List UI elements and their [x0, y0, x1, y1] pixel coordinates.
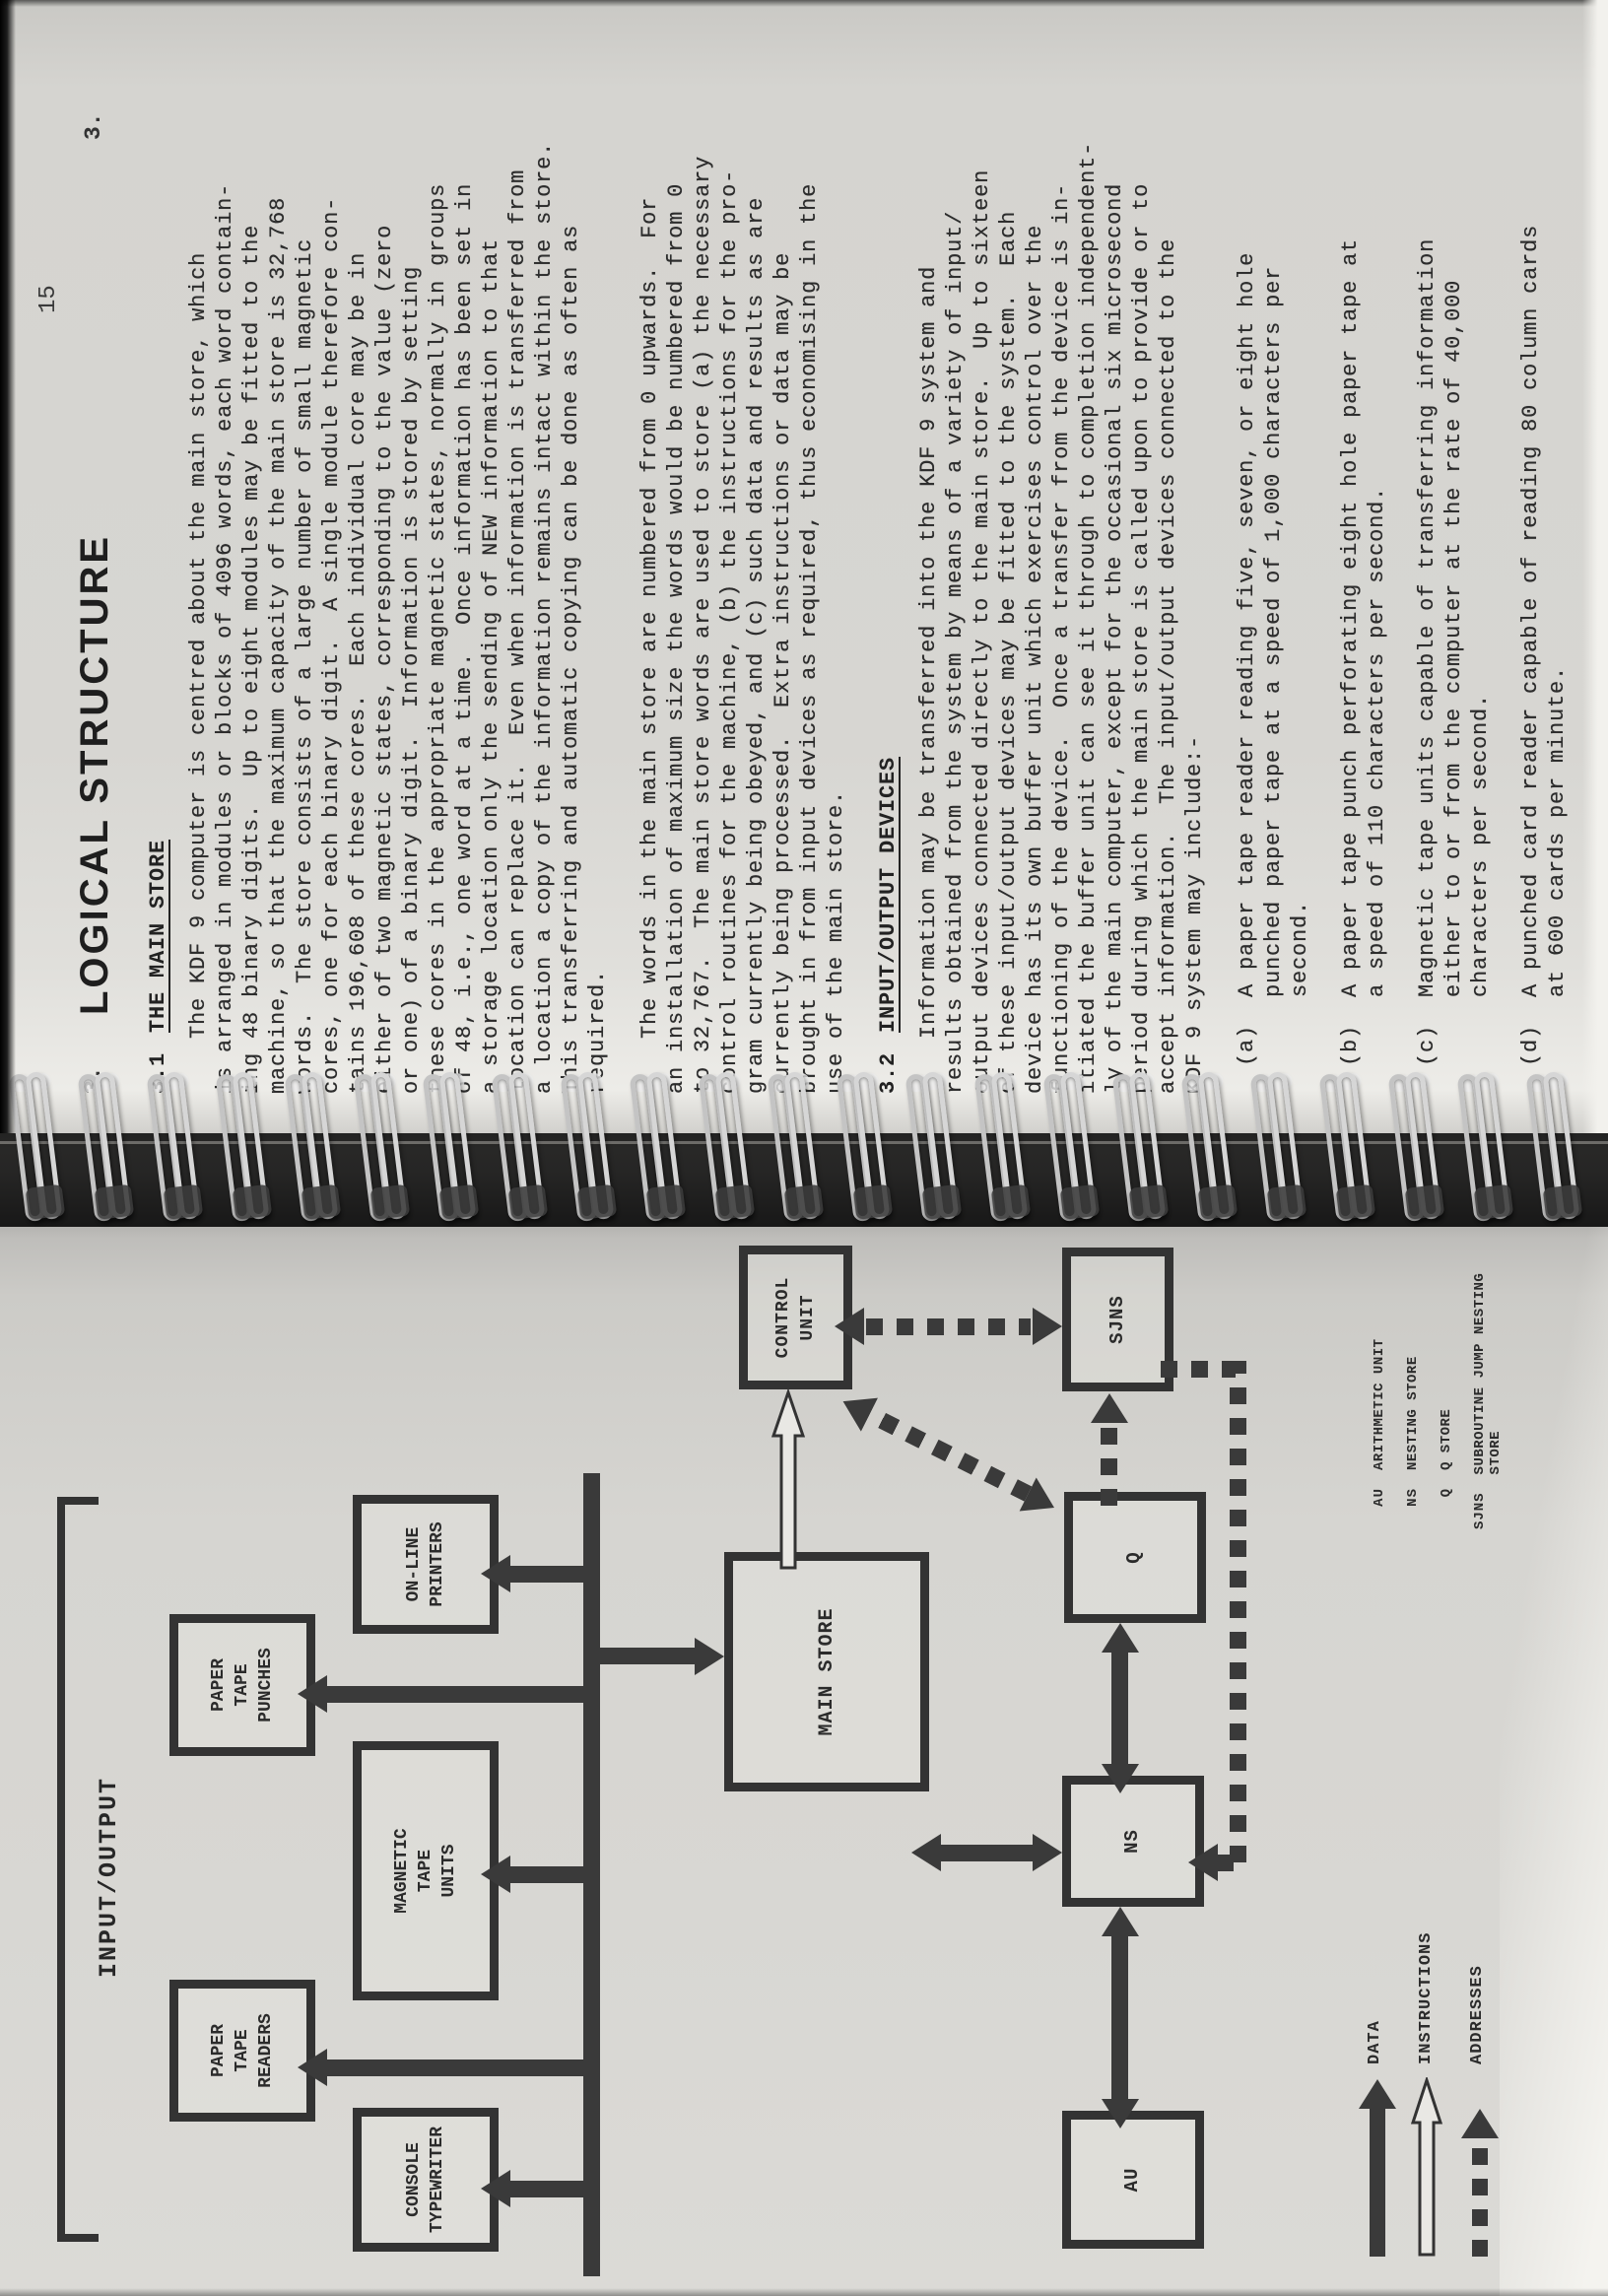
legend-data-arrowhead — [1359, 2079, 1396, 2109]
page-title: LOGICAL STRUCTURE — [73, 534, 117, 1015]
scanned-manual-photo: 15 3. LOGICAL STRUCTURE 3. 3.1THE MAIN S… — [0, 0, 1608, 2296]
box-q: Q — [1064, 1492, 1206, 1623]
binding-coil — [216, 1070, 280, 1230]
paragraph: The words in the main store are numbered… — [637, 79, 850, 1094]
legend-row: NS NESTING STORE — [1405, 1235, 1439, 1565]
text-line: at 600 cards per minute. — [1545, 79, 1572, 1066]
binding-coil — [1043, 1070, 1107, 1230]
text-line: or one) of a binary digit. Information i… — [399, 79, 426, 1094]
text-line: functioning of the device. Once a transf… — [1049, 79, 1076, 1094]
text-line: output devices connected directly to the… — [970, 79, 996, 1094]
legend-addresses-label: ADDRESSES — [1468, 1965, 1487, 2064]
box-paper-tape-punches: PAPER TAPE PUNCHES — [169, 1614, 315, 1756]
text-line: machine, so that the maximum capacity of… — [266, 79, 293, 1094]
box-paper-tape-readers: PAPER TAPE READERS — [169, 1980, 315, 2122]
scan-edge-bottom — [0, 2288, 1608, 2296]
legend-abbr: Q — [1439, 1488, 1454, 1565]
text-line: period during which the main store is ca… — [1129, 79, 1156, 1094]
list-item-c: (c) Magnetic tape units capable of trans… — [1415, 79, 1495, 1094]
spiral-binding — [0, 1066, 1608, 1244]
text-line: cores, one for each binary digit. A sing… — [319, 79, 346, 1094]
text-page-rotated-content: 15 3. LOGICAL STRUCTURE 3. 3.1THE MAIN S… — [0, 0, 1608, 1133]
text-line: KDF 9 system may include:- — [1182, 79, 1209, 1094]
instructions-arrow-main-store-to-control-unit — [771, 1389, 805, 1570]
box-console-typewriter: CONSOLE TYPEWRITER — [353, 2108, 499, 2252]
input-output-label: INPUT/OUTPUT — [95, 1710, 123, 2045]
text-line: This transferring and automatic copying … — [559, 79, 585, 1094]
text-line: Information may be transferred into the … — [916, 79, 943, 1094]
arrowhead-into-ns-top — [1033, 1834, 1062, 1871]
arrowhead-into-control-unit-bottom — [835, 1308, 864, 1345]
arrowhead-into-q-left — [1102, 1623, 1139, 1653]
dashed-sjns-down — [1161, 1361, 1236, 1378]
text-line: ing 48 binary digits. Up to eight module… — [239, 79, 266, 1094]
text-line: characters per second. — [1468, 79, 1495, 1066]
text-line: a storage location only the sending of N… — [479, 79, 505, 1094]
binding-coil — [1526, 1070, 1590, 1230]
text-line: currently being processed. Extra instruc… — [770, 79, 797, 1094]
binding-coil — [423, 1070, 487, 1230]
text-line: either to or from the computer at the ra… — [1441, 79, 1468, 1066]
text-line: an installation of maximum size the word… — [664, 79, 691, 1094]
input-output-bracket — [57, 1497, 99, 2242]
list-item-d: (d) A punched card reader capable of rea… — [1518, 79, 1572, 1094]
section-heading-3-2: 3.2INPUT/OUTPUT DEVICES — [876, 79, 903, 1094]
legend-data-arrow — [1370, 2109, 1385, 2257]
binding-coil — [1457, 1070, 1521, 1230]
page-stack-edge-right — [1582, 0, 1608, 1133]
text-line: is arranged in modules or blocks of 4096… — [213, 79, 239, 1094]
connector-console-typewriter — [506, 2181, 591, 2197]
arrowhead-into-ns-left — [1102, 1907, 1139, 1936]
legend-abbr: SJNS — [1472, 1492, 1488, 1565]
connector-online-printers — [506, 1566, 591, 1583]
arrowhead-into-au — [1102, 2099, 1139, 2128]
arrowhead-into-ns-bottom — [1188, 1844, 1218, 1881]
text-line: a location a copy of the information rem… — [532, 79, 559, 1094]
box-main-store: MAIN STORE — [724, 1552, 929, 1791]
arrowhead-into-sjns-top — [1033, 1308, 1062, 1345]
legend-meaning: Q STORE — [1439, 1409, 1454, 1470]
legend-meaning: ARITHMETIC UNIT — [1372, 1338, 1387, 1470]
text-line: (c) Magnetic tape units capable of trans… — [1415, 79, 1441, 1066]
connector-bus-to-main-store — [591, 1648, 697, 1664]
text-line: accept information. The input/output dev… — [1156, 79, 1182, 1094]
text-line: required. — [585, 79, 612, 1094]
box-au: AU — [1062, 2111, 1204, 2249]
text-line: itiated the buffer unit can see it throu… — [1076, 79, 1103, 1094]
legend-instructions-arrow — [1411, 2077, 1442, 2257]
binding-coil — [285, 1070, 349, 1230]
legend-meaning: SUBROUTINE JUMP NESTING STORE — [1472, 1235, 1504, 1474]
box-online-printers: ON-LINE PRINTERS — [353, 1495, 499, 1634]
text-line: brought in from input devices as require… — [797, 79, 824, 1094]
text-line: these cores in the appropriate magnetic … — [426, 79, 452, 1094]
scan-edge-top — [0, 0, 1608, 7]
figure-page-rotated-content: INPUT/OUTPUT PAPER TAPE READERS PAPER TA… — [0, 1227, 1608, 2296]
binding-coil — [974, 1070, 1038, 1230]
box-magnetic-tape-units: MAGNETIC TAPE UNITS — [353, 1741, 499, 2000]
connector-ns-q — [1111, 1651, 1128, 1766]
paragraph: The KDF 9 computer is centred about the … — [186, 79, 612, 1094]
binding-coil — [768, 1070, 832, 1230]
body-text-column: 3.1THE MAIN STORE The KDF 9 computer is … — [146, 79, 1595, 1094]
binding-coil — [1319, 1070, 1383, 1230]
legend-addresses-arrowhead — [1461, 2109, 1499, 2138]
legend-abbr: NS — [1405, 1488, 1421, 1565]
legend-addresses-arrow — [1472, 2140, 1488, 2257]
legend-row: AU ARITHMETIC UNIT — [1372, 1235, 1405, 1565]
text-line: to 32,767. The main store words are used… — [691, 79, 717, 1094]
text-line: (d) A punched card reader capable of rea… — [1518, 79, 1545, 1066]
binding-coil — [561, 1070, 625, 1230]
binding-coil — [147, 1070, 211, 1230]
text-line: of 48, i.e., one word at a time. Once in… — [452, 79, 479, 1094]
text-line: results obtained from the system by mean… — [943, 79, 970, 1094]
legend-instructions-label: INSTRUCTIONS — [1417, 1932, 1436, 2064]
legend-data-label: DATA — [1366, 2020, 1384, 2064]
arrowhead-into-sjns-left — [1091, 1393, 1128, 1423]
dashed-turn-stub — [1216, 1855, 1234, 1871]
text-line: gram currently being obeyed, and (c) suc… — [744, 79, 770, 1094]
title-line: 3. LOGICAL STRUCTURE 3. — [73, 0, 116, 1133]
figure-caption: FIGURE 2 — [1545, 2081, 1575, 2261]
binding-coil — [837, 1070, 901, 1230]
dashed-control-unit-q — [836, 1386, 1062, 1522]
text-line: ly of the main computer, except for the … — [1103, 79, 1129, 1094]
arrowhead-into-main-store-bottom — [911, 1834, 941, 1871]
text-line: The words in the main store are numbered… — [637, 79, 664, 1094]
binding-coil — [630, 1070, 694, 1230]
connector-paper-tape-punches — [323, 1686, 591, 1703]
binding-coil — [1112, 1070, 1176, 1230]
arrowhead-into-ns-right — [1102, 1764, 1139, 1793]
binding-coil — [492, 1070, 556, 1230]
dashed-sjns-to-ns — [1230, 1361, 1246, 1862]
box-sjns: SJNS — [1062, 1248, 1173, 1391]
connector-main-store-ns — [939, 1845, 1035, 1861]
text-line: punched paper tape at a speed of 1,000 c… — [1261, 79, 1288, 1066]
text-line: location can replace it. Even when infor… — [505, 79, 532, 1094]
legend-abbr: AU — [1372, 1488, 1387, 1565]
legend-row: Q Q STORE — [1439, 1235, 1472, 1565]
connector-magnetic-tape-units — [506, 1866, 591, 1883]
connector-au-ns — [1111, 1933, 1128, 2101]
binding-coil — [1250, 1070, 1314, 1230]
text-line: second. — [1288, 79, 1314, 1066]
text-line: either of two magnetic states, correspon… — [372, 79, 399, 1094]
text-line: The KDF 9 computer is centred about the … — [186, 79, 213, 1094]
abbreviation-legend: AU ARITHMETIC UNIT NS NESTING STORE Q Q … — [1372, 1235, 1506, 1565]
text-line: use of the main store. — [824, 79, 850, 1094]
binding-coil — [1388, 1070, 1452, 1230]
binding-coil — [78, 1070, 142, 1230]
section-heading-3-1: 3.1THE MAIN STORE — [146, 79, 172, 1094]
box-ns: NS — [1062, 1776, 1204, 1907]
paragraph: Information may be transferred into the … — [916, 79, 1209, 1094]
text-line: (b) A paper tape punch perforating eight… — [1338, 79, 1365, 1066]
binding-coil — [699, 1070, 763, 1230]
arrowhead-into-main-store-top — [695, 1638, 724, 1675]
legend-row: SJNS SUBROUTINE JUMP NESTING STORE — [1472, 1235, 1506, 1565]
text-line: words. The store consists of a large num… — [293, 79, 319, 1094]
text-page: 15 3. LOGICAL STRUCTURE 3. 3.1THE MAIN S… — [0, 0, 1608, 1133]
dashed-q-sjns — [1101, 1425, 1117, 1506]
text-line: device has its own buffer unit which exe… — [1023, 79, 1049, 1094]
binding-coil — [1181, 1070, 1245, 1230]
text-line: control routines for the machine, (b) th… — [717, 79, 744, 1094]
text-line: a speed of 110 characters per second. — [1365, 79, 1391, 1066]
binding-coil — [354, 1070, 418, 1230]
text-line: (a) A paper tape reader reading five, se… — [1235, 79, 1261, 1066]
connector-paper-tape-readers — [323, 2060, 591, 2076]
dashed-control-unit-sjns — [866, 1318, 1031, 1335]
text-line: tains 196,608 of these cores. Each indiv… — [346, 79, 372, 1094]
page-number: 15 — [35, 285, 62, 313]
chapter-marker-right: 3. — [81, 112, 106, 140]
list-item-a: (a) A paper tape reader reading five, se… — [1235, 79, 1314, 1094]
text-line: of these input/output devices may be fit… — [996, 79, 1023, 1094]
scan-edge-left — [0, 0, 16, 1133]
list-item-b: (b) A paper tape punch perforating eight… — [1338, 79, 1391, 1094]
binding-coil — [9, 1070, 73, 1230]
legend-meaning: NESTING STORE — [1405, 1356, 1421, 1470]
binding-coil — [905, 1070, 970, 1230]
figure-page: INPUT/OUTPUT PAPER TAPE READERS PAPER TA… — [0, 1227, 1608, 2296]
